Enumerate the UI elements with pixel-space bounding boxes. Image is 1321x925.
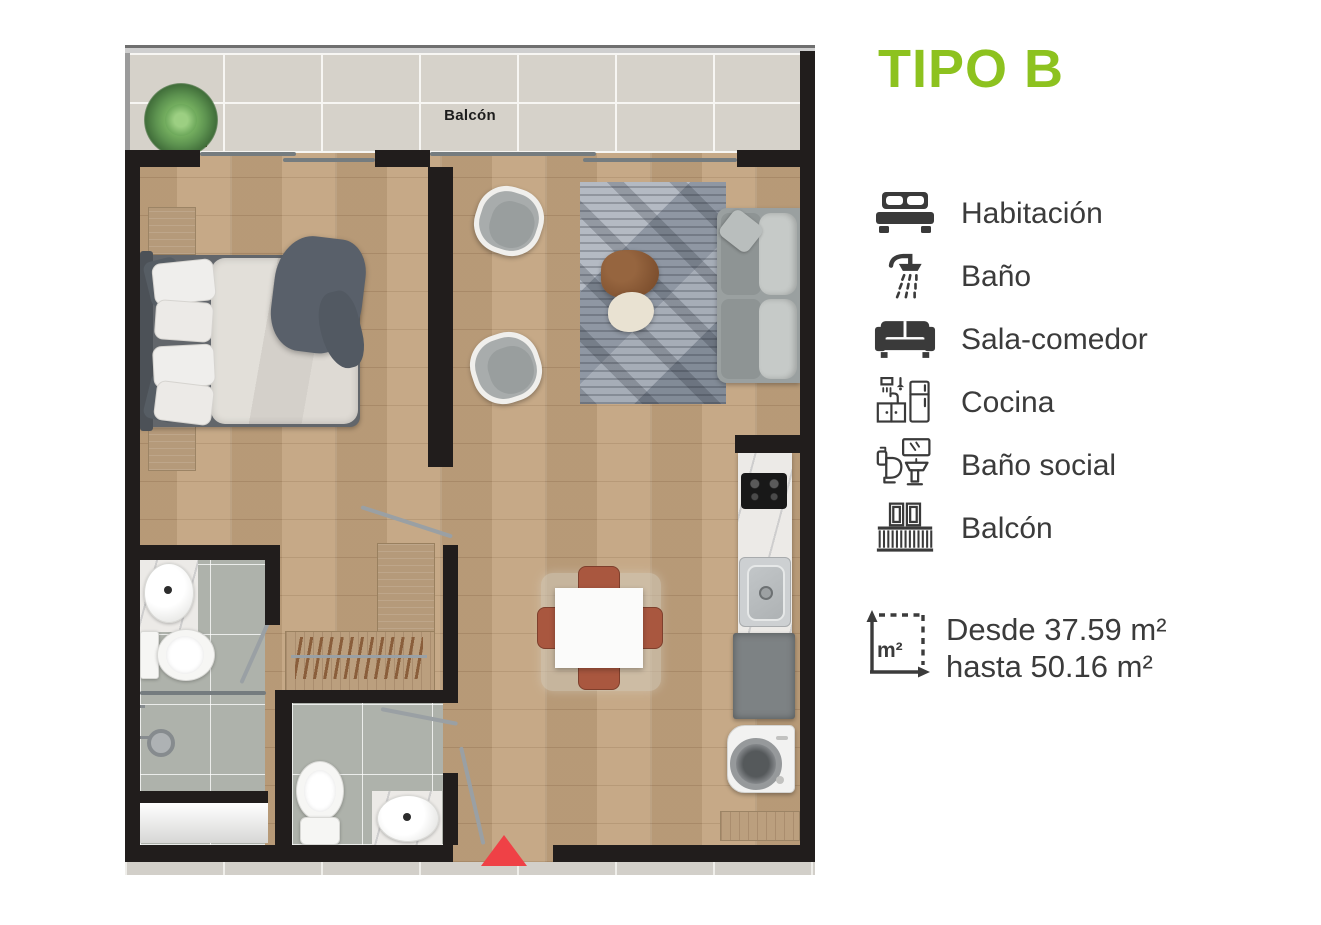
entrance-marker: [481, 835, 527, 866]
wall: [735, 435, 800, 453]
balcony-floor: [125, 53, 815, 153]
wall: [428, 167, 453, 467]
legend-item-cocina: Cocina: [863, 371, 1283, 434]
area-info: m² Desde 37.59 m² hasta 50.16 m²: [862, 606, 1167, 689]
cooktop: [741, 473, 787, 509]
m2-label: m²: [877, 639, 903, 663]
area-line-hasta: hasta 50.16 m²: [946, 648, 1167, 685]
canvas: { "title": "TIPO B", "colors": { "accent…: [0, 0, 1321, 925]
wall: [125, 150, 200, 167]
legend-label: Sala-comedor: [947, 323, 1148, 357]
area-range-text: Desde 37.59 m² hasta 50.16 m²: [940, 611, 1167, 685]
legend-item-bano-social: Baño social: [863, 434, 1283, 497]
sofa-seat-cushion: [721, 299, 761, 379]
toilet-bowl: [157, 629, 215, 681]
legend-label: Baño: [947, 260, 1031, 294]
social-toilet-tank: [300, 817, 340, 845]
washing-machine: [727, 725, 795, 793]
nightstand: [148, 207, 196, 255]
pillow: [154, 299, 215, 343]
social-sink-faucet: [403, 813, 411, 821]
dining-table: [555, 588, 643, 668]
legend-item-habitacion: Habitación: [863, 182, 1283, 245]
wall: [275, 690, 292, 845]
m2-area-icon: m²: [862, 606, 940, 689]
shower-shelf: [138, 803, 268, 843]
pillow: [151, 258, 217, 306]
plant-foliage-core: [165, 104, 197, 136]
sofa-back-cushion: [759, 213, 797, 295]
wall: [800, 51, 815, 862]
legend-item-bano: Baño: [863, 245, 1283, 308]
legend-item-sala-comedor: Sala-comedor: [863, 308, 1283, 371]
shower-icon: [863, 252, 947, 302]
wall: [275, 690, 458, 703]
closet-rod: [291, 655, 427, 658]
shower-head: [147, 729, 175, 757]
wall: [443, 545, 458, 693]
wall: [553, 845, 800, 862]
wardrobe: [377, 543, 435, 637]
floor-plan: Balcón: [125, 45, 815, 875]
wall: [443, 773, 458, 845]
legend-label: Baño social: [947, 449, 1116, 483]
bedroom-sliding-door: [200, 152, 296, 156]
bedroom-sliding-door: [283, 158, 375, 162]
washer-door: [730, 738, 782, 790]
plan-type-title: TIPO B: [878, 38, 1064, 100]
wall: [125, 845, 453, 862]
kitchen-sink: [739, 557, 791, 627]
bed-icon: [863, 191, 947, 237]
living-sliding-door: [583, 158, 737, 162]
bathroom-sink-faucet: [164, 586, 172, 594]
entry-bench: [720, 811, 800, 841]
wall: [265, 560, 280, 625]
sofa-icon: [863, 318, 947, 361]
balcony-railing-left: [125, 53, 130, 150]
shower-glass-partition: [140, 691, 266, 695]
living-rug: [580, 182, 726, 404]
wall: [125, 150, 140, 862]
legend-label: Cocina: [947, 386, 1054, 420]
hallway-floor: [125, 862, 815, 875]
kitchen-cabinet: [733, 633, 795, 719]
legend-label: Balcón: [947, 512, 1053, 546]
balcony-railing: [125, 45, 815, 53]
legend-label: Habitación: [947, 197, 1103, 231]
legend-item-balcon: Balcón: [863, 497, 1283, 560]
nightstand: [148, 421, 196, 471]
kitchen-icon: [863, 376, 947, 429]
clothes-hangers: [295, 637, 423, 679]
balcony-label: Balcón: [125, 107, 815, 124]
wall: [737, 150, 800, 167]
legend: Habitación Baño: [863, 182, 1283, 560]
living-sliding-door: [430, 152, 596, 156]
balcony-railing-icon: [863, 502, 947, 555]
wall: [375, 150, 430, 167]
toilet-sink-icon: [863, 438, 947, 493]
area-line-desde: Desde 37.59 m²: [946, 611, 1167, 648]
pillow: [153, 380, 215, 427]
wall: [125, 545, 280, 560]
social-toilet-bowl: [296, 761, 344, 821]
wall: [138, 791, 268, 803]
sofa-back-cushion: [759, 299, 797, 379]
